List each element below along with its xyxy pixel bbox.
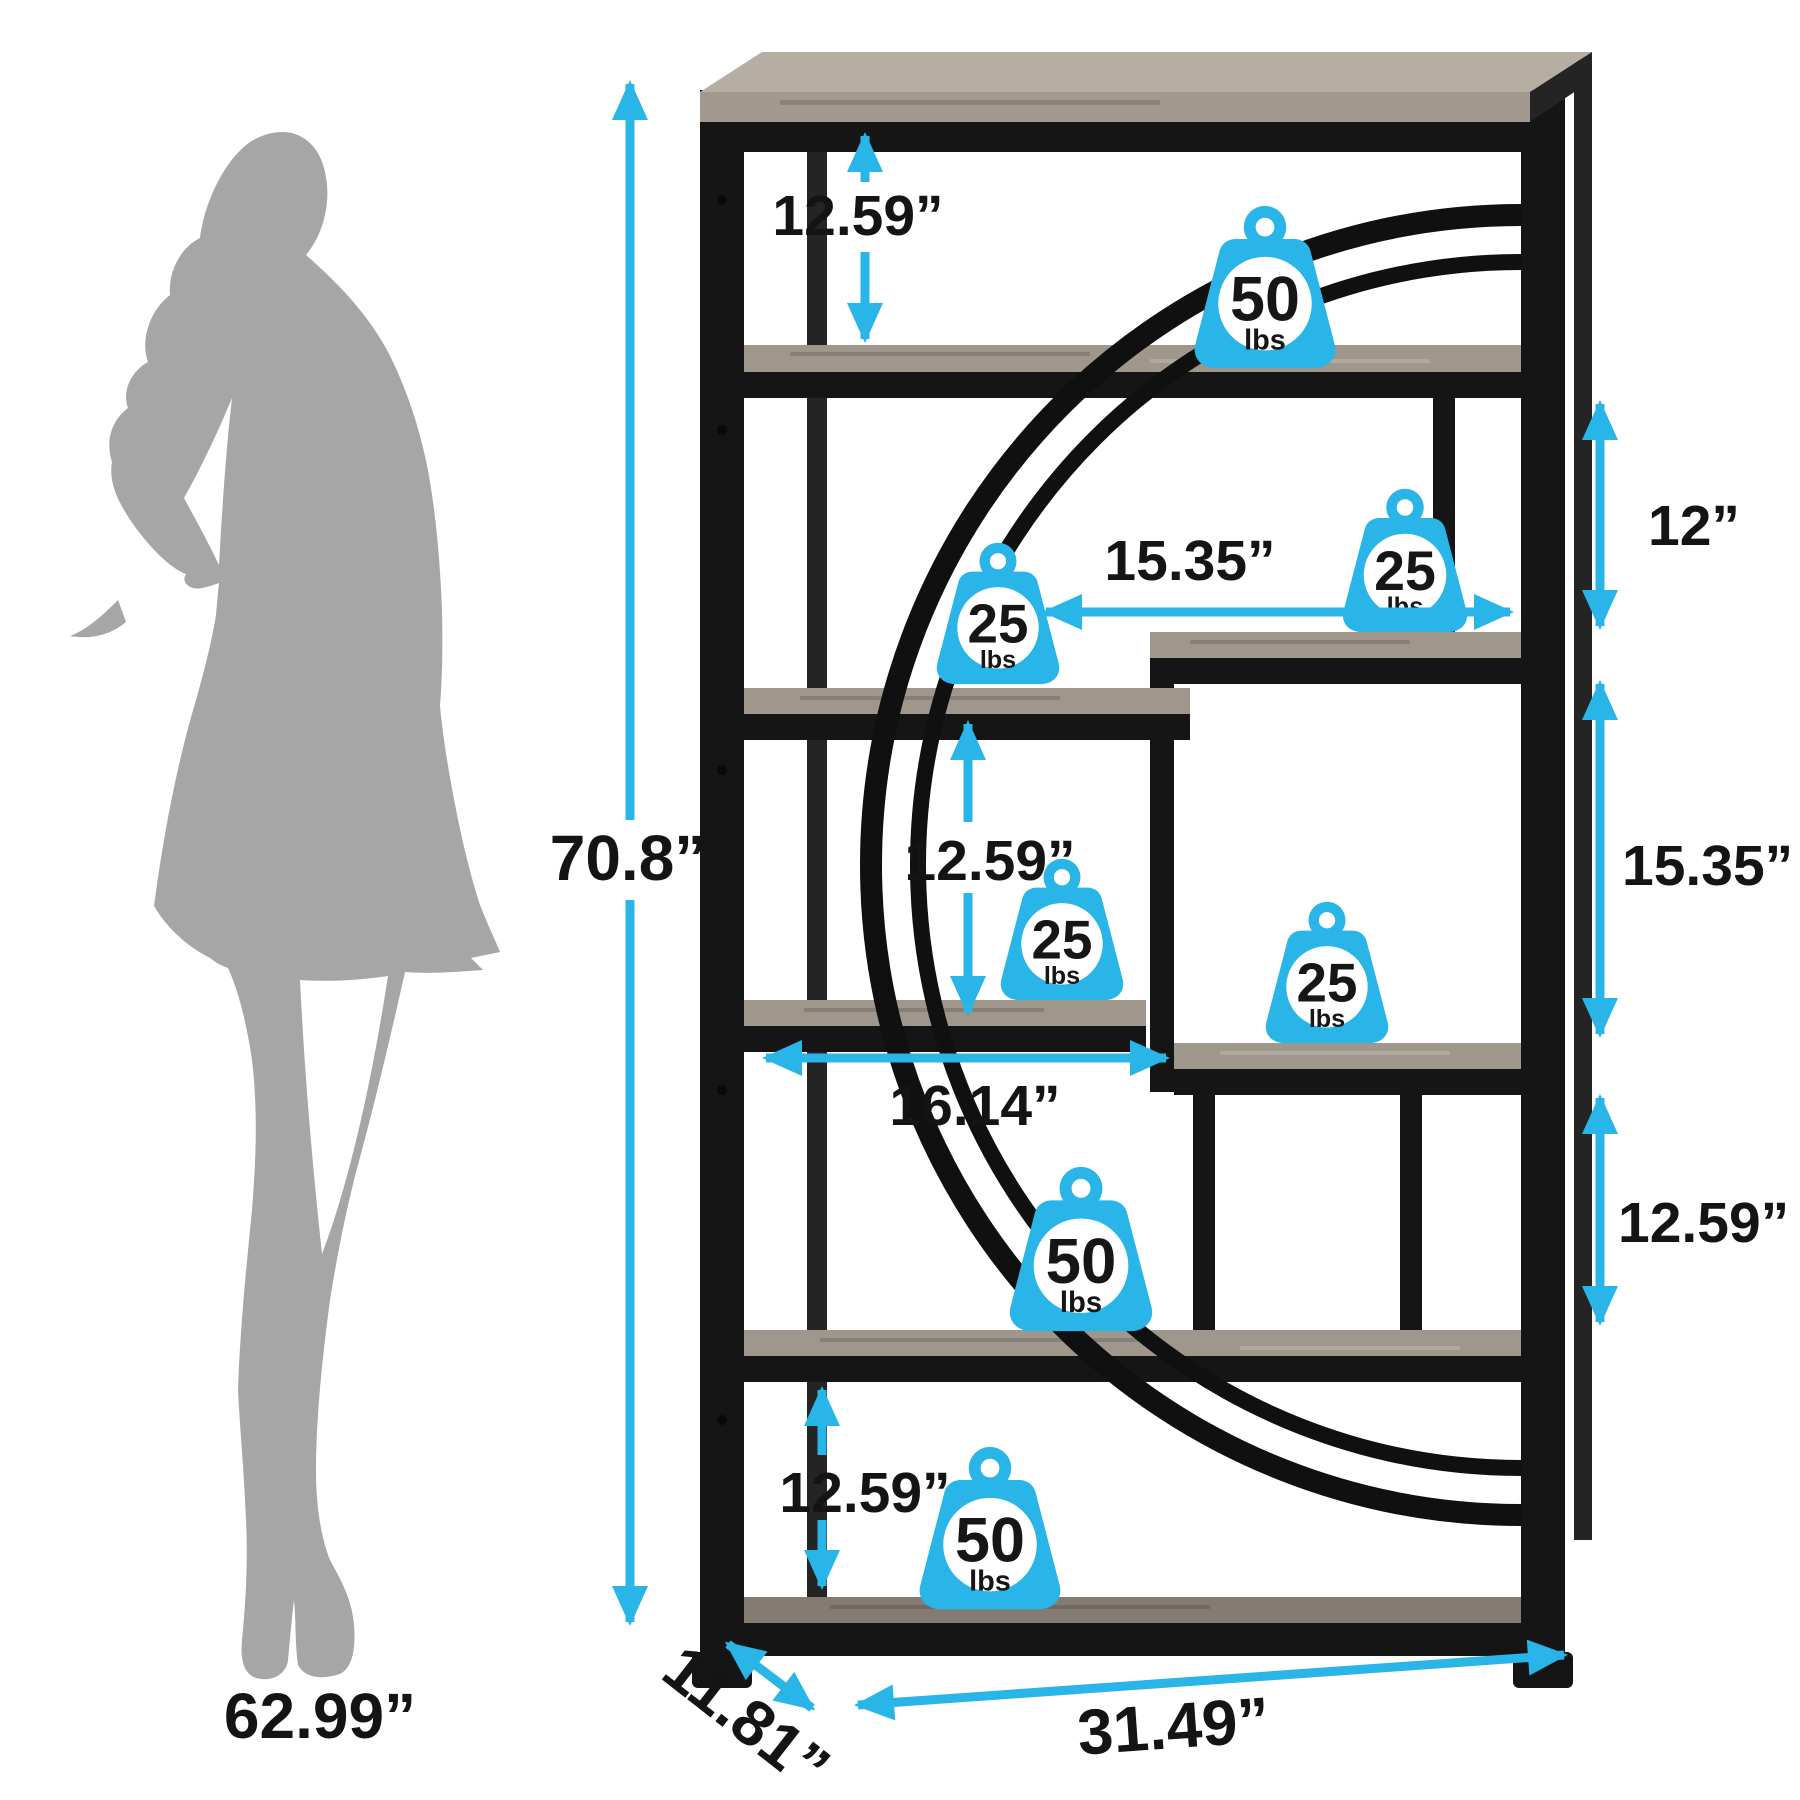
weight-unit: lbs [969,1566,1011,1598]
shelf-back-leg-right [1574,60,1592,1540]
weight-unit: lbs [1060,1287,1102,1319]
dimension-label: 12.59” [779,1461,950,1525]
product-dimension-diagram: 50 lbs 25 lbs 25 lbs 25 lbs 25 lbs 50 lb… [0,0,1800,1800]
dimension-label: 15.35” [1104,529,1275,593]
weight-capacity-icon: 50 lbs [1195,206,1336,368]
person-height-label: 62.99” [224,1680,416,1752]
shelf-right-post [1521,90,1565,1656]
shelf-post [1400,1085,1422,1337]
dimension-bottom-gap: 12.59” [779,1390,950,1586]
dimension-label: 12.59” [904,829,1075,893]
weight-unit: lbs [1309,1005,1345,1033]
shelf-top-slab [700,52,1592,152]
shelf-post [1193,1085,1215,1337]
shelf-bottom [744,1597,1521,1656]
shelf-right-mid [1174,1043,1521,1095]
dimension-label: 31.49” [1075,1683,1272,1768]
dimension-right-top-gap: 12” [1600,404,1740,626]
weight-unit: lbs [1044,962,1080,990]
dimension-label: 12” [1648,494,1740,558]
weight-capacity-icon: 25 lbs [1266,902,1389,1043]
dimension-label: 16.14” [889,1074,1060,1138]
bookshelf-illustration [692,52,1592,1688]
dimension-overall-depth: 11.81” [650,1631,843,1800]
weight-unit: lbs [1244,325,1286,357]
shelf-right-upper [1150,632,1521,684]
dimension-right-lower-gap: 12.59” [1600,1098,1789,1322]
dimension-overall-height: 70.8” [550,84,707,1622]
dimension-label: 12.59” [1618,1191,1789,1255]
woman-silhouette [70,132,500,1679]
dimension-label: 12.59” [772,184,943,248]
dimension-right-mid-gap: 15.35” [1600,684,1793,1034]
dimension-label: 70.8” [550,822,707,894]
weight-unit: lbs [980,646,1016,674]
weight-capacity-icon: 50 lbs [1010,1167,1152,1331]
dimension-label: 15.35” [1622,834,1793,898]
dimension-overall-width: 31.49” [858,1655,1564,1769]
dimension-top-gap: 12.59” [772,136,943,339]
